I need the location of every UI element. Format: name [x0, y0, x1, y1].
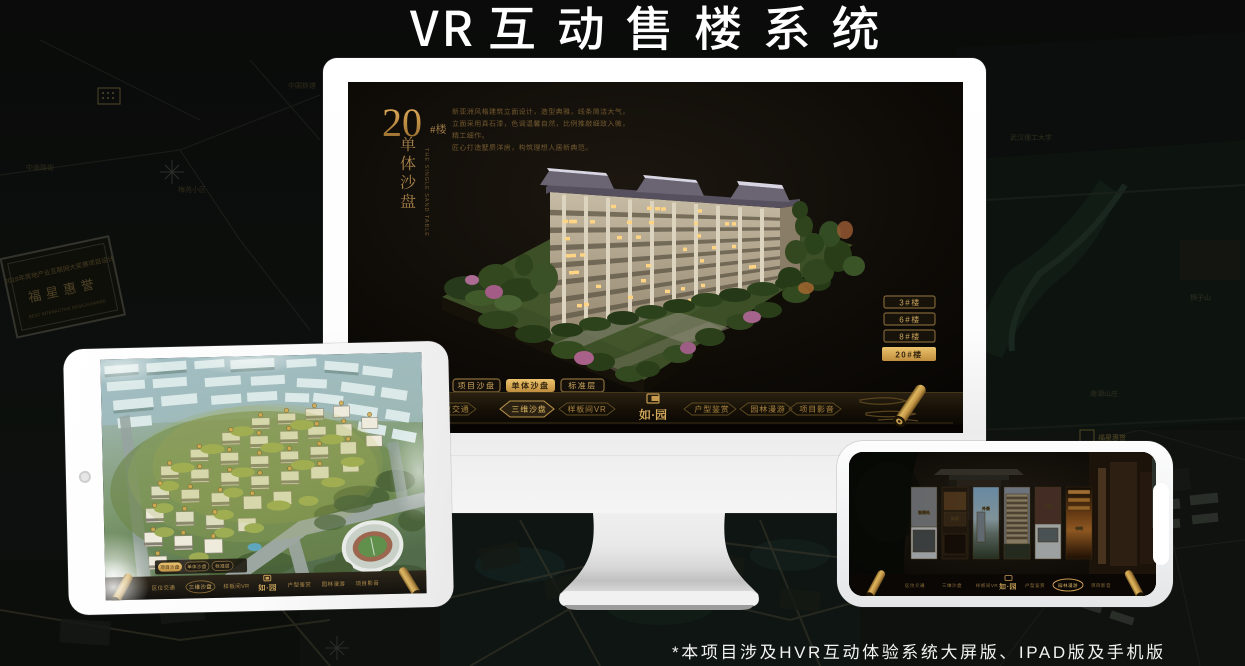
- svg-text:20#楼: 20#楼: [895, 351, 922, 360]
- svg-text:项目沙盘: 项目沙盘: [458, 382, 496, 391]
- svg-text:园林漫游: 园林漫游: [750, 405, 785, 414]
- svg-text:单体沙盘: 单体沙盘: [512, 382, 550, 391]
- svg-text:THE SINGLE SAND TABLE: THE SINGLE SAND TABLE: [423, 148, 429, 237]
- svg-text:8#楼: 8#楼: [899, 333, 920, 342]
- svg-text:标准层: 标准层: [568, 382, 597, 391]
- svg-text:立面采用真石漆，色调温馨自然，比例推敲细致入微，: 立面采用真石漆，色调温馨自然，比例推敲细致入微，: [452, 120, 630, 128]
- svg-text:精工细作。: 精工细作。: [452, 132, 489, 140]
- svg-text:园林漫游: 园林漫游: [1058, 583, 1078, 588]
- svg-text:三维沙盘: 三维沙盘: [511, 405, 546, 414]
- svg-text:如·园: 如·园: [638, 408, 667, 422]
- svg-text:沙: 沙: [400, 174, 417, 192]
- svg-text:狮子山: 狮子山: [1190, 294, 1211, 302]
- svg-text:南湖山庄: 南湖山庄: [1090, 390, 1118, 398]
- svg-text:户型鉴赏: 户型鉴赏: [694, 405, 729, 414]
- svg-text:区位交通: 区位交通: [905, 583, 925, 588]
- svg-text:中南路街: 中南路街: [26, 164, 54, 172]
- svg-text:新亚洲风格建筑立面设计，造型典雅，线条简洁大气，: 新亚洲风格建筑立面设计，造型典雅，线条简洁大气，: [452, 108, 630, 116]
- svg-text:武汉理工大学: 武汉理工大学: [1010, 134, 1052, 142]
- svg-text:单: 单: [400, 136, 416, 154]
- svg-text:匠心打造墅质洋房，构筑理想人居新典范。: 匠心打造墅质洋房，构筑理想人居新典范。: [452, 144, 593, 152]
- svg-text:中国铁建: 中国铁建: [288, 82, 316, 90]
- svg-text:户型鉴赏: 户型鉴赏: [1025, 583, 1045, 588]
- svg-text:样板间VR: 样板间VR: [567, 405, 606, 414]
- svg-text:三维沙盘: 三维沙盘: [942, 583, 962, 588]
- svg-text:体: 体: [400, 155, 416, 173]
- svg-text:如·园: 如·园: [998, 582, 1017, 591]
- svg-text:样板间VR: 样板间VR: [976, 583, 999, 588]
- svg-text:3#楼: 3#楼: [899, 299, 920, 308]
- svg-text:6#楼: 6#楼: [899, 316, 920, 325]
- svg-text:项目影音: 项目影音: [1091, 583, 1111, 588]
- svg-text:梅苑小区: 梅苑小区: [178, 186, 206, 194]
- svg-text:盘: 盘: [400, 193, 416, 211]
- svg-text:项目影音: 项目影音: [799, 405, 834, 414]
- svg-text:#楼: #楼: [430, 123, 448, 136]
